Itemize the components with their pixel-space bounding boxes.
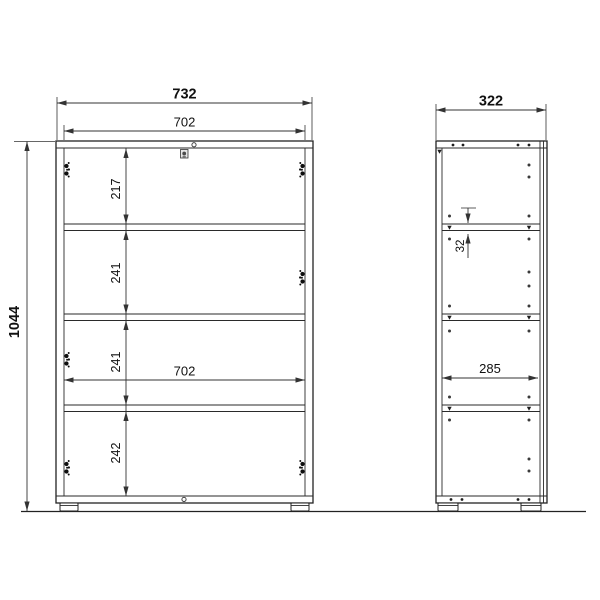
- dim-label-322: 322: [479, 94, 503, 110]
- front-outer-body: [56, 141, 313, 503]
- side-view: 322 285 32: [436, 94, 547, 512]
- front-foot-left: [60, 503, 78, 511]
- cam-fitting-left-3: [64, 460, 70, 476]
- side-foot-left: [438, 503, 458, 511]
- dim-side-inner-depth: 285: [442, 361, 538, 378]
- dim-label-32: 32: [455, 240, 467, 253]
- front-feet: [60, 503, 309, 511]
- furniture-dimension-drawing: 732 702 1044 217 241 241 242: [0, 0, 600, 600]
- dim-front-compartments: 217 241 241 242: [109, 149, 126, 497]
- cam-fitting-right-2: [299, 270, 305, 286]
- dim-front-overall-height: 1044: [7, 142, 55, 512]
- dim-label-285: 285: [479, 361, 501, 376]
- cam-fitting-left-2: [64, 352, 70, 368]
- top-panel-hole: [192, 143, 196, 147]
- dim-front-inner-width-top: 702: [64, 115, 305, 141]
- cam-fitting-left-1: [64, 162, 70, 178]
- dim-label-702-top: 702: [174, 115, 196, 130]
- bottom-panel-hole: [182, 497, 186, 501]
- top-cam-lock-fitting: [181, 150, 189, 159]
- dim-label-241-b: 241: [109, 352, 123, 373]
- side-outer-body: [436, 141, 547, 503]
- dim-front-inner-width-mid: 702: [64, 364, 305, 381]
- dim-label-241-a: 241: [109, 263, 123, 284]
- front-cam-fittings: [64, 162, 304, 476]
- dim-label-1044: 1044: [7, 306, 23, 338]
- dim-label-702-mid: 702: [174, 364, 196, 379]
- dim-label-217: 217: [109, 179, 123, 200]
- cam-fitting-right-1: [299, 162, 305, 178]
- cam-fitting-right-3: [299, 460, 305, 476]
- dim-label-242: 242: [109, 443, 123, 464]
- dim-side-overall-depth: 322: [436, 94, 546, 141]
- front-view: 732 702 1044 217 241 241 242: [7, 87, 313, 512]
- dim-side-hole-offset: 32: [455, 208, 476, 258]
- dim-label-732: 732: [172, 87, 196, 103]
- side-foot-right: [521, 503, 541, 511]
- front-shelves: [64, 224, 305, 412]
- side-feet: [438, 503, 541, 511]
- front-foot-right: [291, 503, 309, 511]
- dim-front-overall-width: 732: [57, 87, 312, 141]
- shelf-pin-holes: [448, 164, 531, 473]
- panel-screw-holes: [450, 144, 531, 501]
